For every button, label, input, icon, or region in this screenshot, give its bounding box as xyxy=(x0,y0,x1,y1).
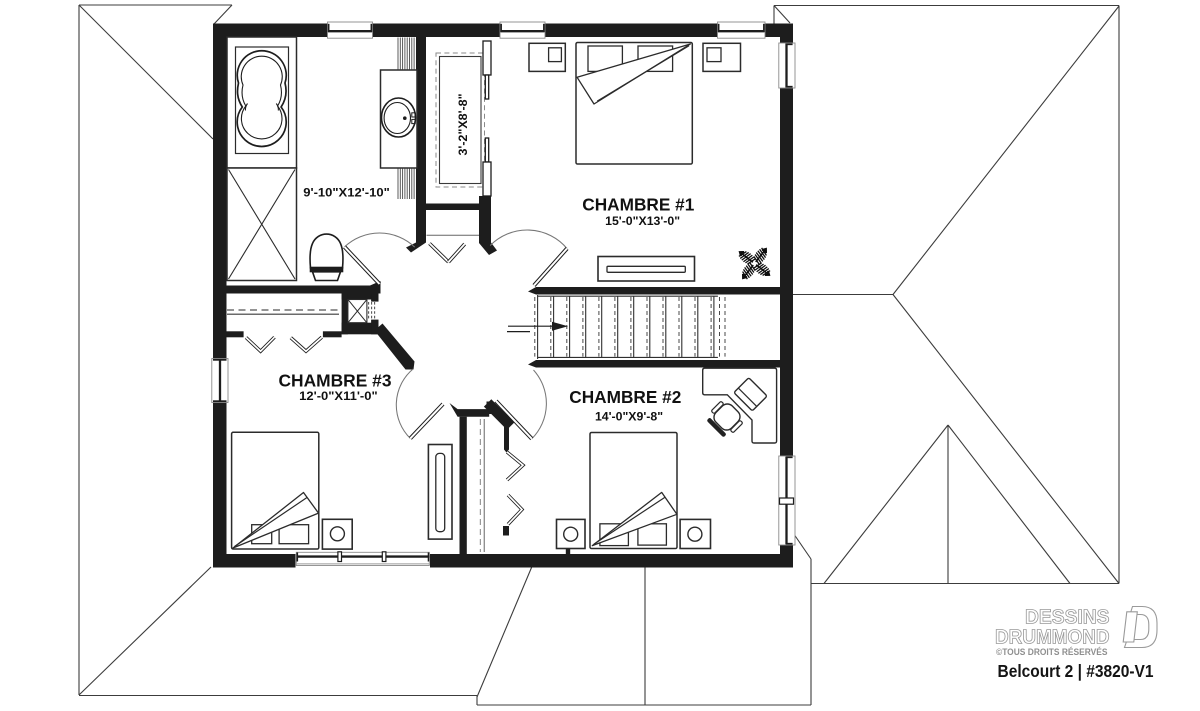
svg-text:©TOUS DROITS RÉSERVÉS: ©TOUS DROITS RÉSERVÉS xyxy=(996,647,1108,657)
svg-text:12'-0"X11'-0": 12'-0"X11'-0" xyxy=(299,389,378,403)
svg-text:CHAMBRE #2: CHAMBRE #2 xyxy=(569,387,681,407)
svg-text:14'-0"X9'-8": 14'-0"X9'-8" xyxy=(595,409,663,423)
svg-text:15'-0"X13'-0": 15'-0"X13'-0" xyxy=(605,214,680,228)
svg-text:DRUMMOND: DRUMMOND xyxy=(995,626,1110,648)
svg-text:CHAMBRE #3: CHAMBRE #3 xyxy=(279,370,392,390)
svg-text:Belcourt 2 | #3820-V1: Belcourt 2 | #3820-V1 xyxy=(998,661,1154,681)
svg-text:DESSINS: DESSINS xyxy=(1025,607,1110,629)
svg-text:CHAMBRE #1: CHAMBRE #1 xyxy=(582,194,694,214)
svg-text:9'-10"X12'-10": 9'-10"X12'-10" xyxy=(303,186,390,200)
svg-text:3'-2"X8'-8": 3'-2"X8'-8" xyxy=(456,93,470,155)
